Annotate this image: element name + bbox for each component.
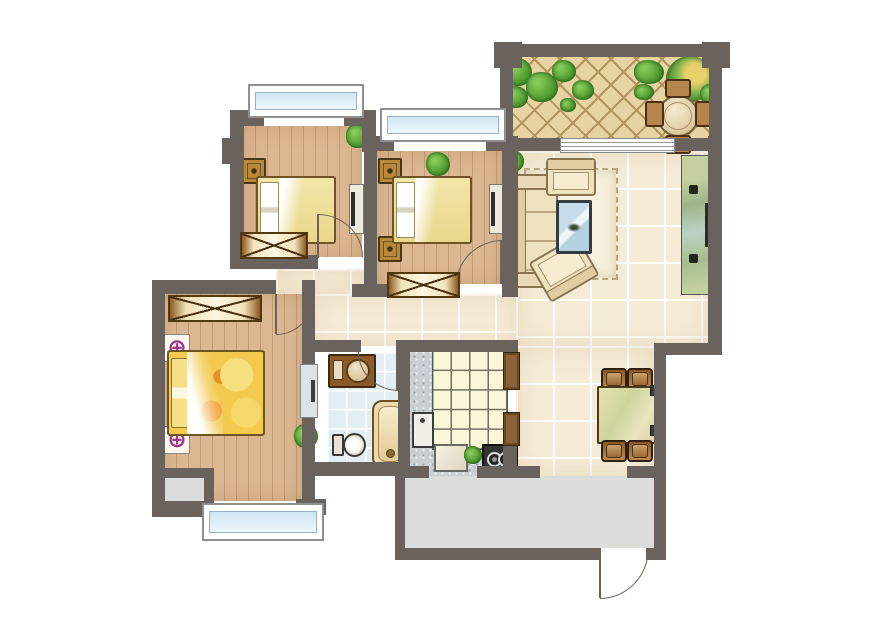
wall-segment [403,548,600,560]
wardrobe-bedroom-2 [387,272,460,298]
wall-segment [672,138,722,151]
door-bedroom-2-leaf [500,240,502,284]
bay-window-bedroom-2 [380,108,506,142]
wall-segment [498,44,724,57]
wall-segment [494,42,522,68]
wall-segment [395,466,405,560]
wall-segment [352,284,390,297]
wall-segment [222,138,230,164]
wall-segment [502,136,518,292]
wall-segment [708,136,722,355]
terrace-plant [634,60,664,84]
wall-segment [654,346,666,560]
wall-segment [702,42,730,68]
wall-segment [152,280,165,517]
terrace-sliding-door [560,138,675,153]
hallway [310,294,518,346]
terrace-plant [572,80,594,100]
kitchen-door-frame [503,412,520,446]
wall-segment [315,340,361,352]
wall-segment [313,462,405,476]
wall-segment [152,280,276,294]
cabinet-master-wall [300,364,318,418]
wardrobe-bedroom-1 [240,232,308,259]
service-balcony [405,476,654,548]
bed-master [167,350,265,436]
speaker [689,254,698,263]
wall-segment [500,138,562,151]
entry-door-swing-arc [600,548,649,599]
terrace-chair [645,101,664,127]
armchair [546,158,596,196]
wall-segment [502,272,518,297]
wall-segment [477,466,540,478]
door-bedroom-1-leaf [317,214,319,258]
toilet [332,432,366,458]
kitchen-counter [432,350,508,450]
dining-chair [627,440,653,462]
door-bathroom-leaf [396,352,398,390]
wardrobe-master [168,295,262,322]
cutting-board [434,444,468,472]
bay-window-master-bedroom [202,503,324,541]
wall-segment [398,340,410,474]
wall-segment [410,340,516,352]
bed-bedroom-2 [392,176,472,244]
speaker [689,185,698,194]
terrace-plant [634,84,654,100]
door-master-bedroom-leaf [275,294,277,334]
kitchen-sink [412,412,434,448]
plant-kitchen [464,446,482,464]
wall-segment [503,444,517,468]
plant-bedroom-2 [426,152,450,176]
terrace-chair [665,79,691,98]
entry-door-leaf [599,548,601,598]
terrace-plant [552,60,576,82]
floor-plan: ⊕⊕ [0,0,888,619]
wall-segment [403,466,429,478]
coffee-table [556,200,592,254]
terrace-plant [560,98,576,112]
kitchen-door-frame [503,352,520,390]
bay-window-bedroom-1 [248,84,364,118]
corridor [276,269,364,294]
dining-chair [601,440,627,462]
wall-segment [364,136,377,297]
tv-board-bedroom-1 [349,184,364,234]
